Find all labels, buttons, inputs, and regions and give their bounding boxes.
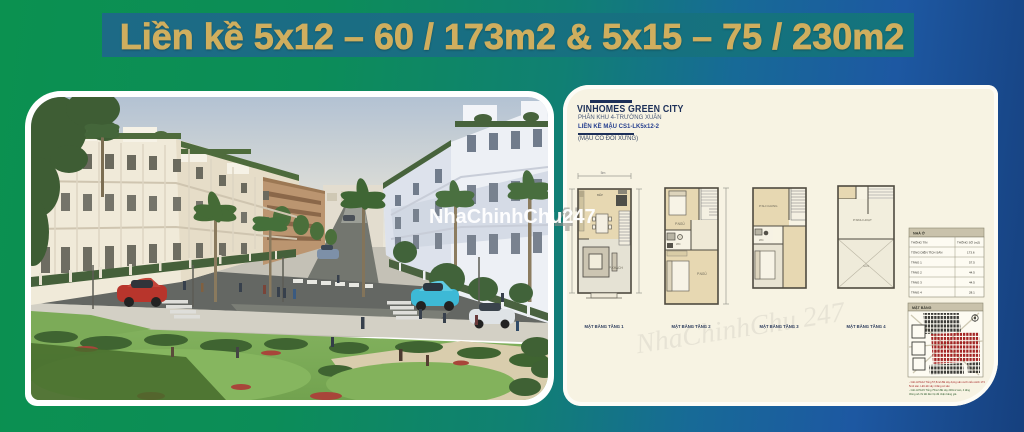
svg-text:P.NGỦ: P.NGỦ <box>697 271 707 276</box>
svg-text:THÔNG TIN: THÔNG TIN <box>911 240 927 245</box>
svg-text:MẶT BẰNG: MẶT BẰNG <box>912 305 932 310</box>
svg-text:TẦNG 2: TẦNG 2 <box>911 271 922 275</box>
svg-text:P.KHÁCH: P.KHÁCH <box>609 266 623 270</box>
svg-text:- Căn LK5x12 Tổng 57,5m2 đất x: - Căn LK5x12 Tổng 57,5m2 đất xây dựng sâ… <box>909 380 985 384</box>
svg-text:28.1: 28.1 <box>969 291 975 295</box>
svg-text:BẾP: BẾP <box>597 192 603 197</box>
svg-text:WC: WC <box>759 238 764 242</box>
svg-text:THÔNG SỐ (m2): THÔNG SỐ (m2) <box>957 240 980 245</box>
svg-text:P.SH CHUNG: P.SH CHUNG <box>759 204 778 208</box>
svg-text:WC: WC <box>676 242 681 246</box>
svg-text:SÂN: SÂN <box>863 263 869 268</box>
svg-text:P.SINH HOẠT: P.SINH HOẠT <box>853 218 872 222</box>
svg-text:TỔNG DIỆN TÍCH SÀN: TỔNG DIỆN TÍCH SÀN <box>911 250 942 255</box>
svg-text:TẦNG 3: TẦNG 3 <box>911 281 922 285</box>
svg-text:TẦNG 1: TẦNG 1 <box>911 261 922 265</box>
svg-text:MẶT BẰNG TẦNG 2: MẶT BẰNG TẦNG 2 <box>671 324 711 329</box>
svg-text:57.5: 57.5 <box>969 261 975 265</box>
svg-text:thông số chi tiết liên hệ để n: thông số chi tiết liên hệ để nhận bảng g… <box>909 392 957 396</box>
svg-text:NHÀ Ở: NHÀ Ở <box>913 231 926 236</box>
svg-text:P.NGỦ: P.NGỦ <box>675 221 685 226</box>
svg-text:44.5: 44.5 <box>969 271 975 275</box>
svg-text:MẶT BẰNG TẦNG 4: MẶT BẰNG TẦNG 4 <box>846 324 886 329</box>
svg-text:MẶT BẰNG TẦNG 3: MẶT BẰNG TẦNG 3 <box>759 324 799 329</box>
svg-text:5m2 sàn. Liền kề xây 4 tầng có: 5m2 sàn. Liền kề xây 4 tầng có sân <box>909 384 950 388</box>
svg-text:173.6: 173.6 <box>967 251 975 255</box>
svg-text:TẦNG 4: TẦNG 4 <box>911 291 922 295</box>
svg-text:- Căn LK5x15 Tổng 75m2 đất xây: - Căn LK5x15 Tổng 75m2 đất xây 230m2 sàn… <box>909 388 971 392</box>
svg-text:MẶT BẰNG TẦNG 1: MẶT BẰNG TẦNG 1 <box>584 324 624 329</box>
svg-text:44.5: 44.5 <box>969 281 975 285</box>
svg-text:5m: 5m <box>601 171 606 175</box>
